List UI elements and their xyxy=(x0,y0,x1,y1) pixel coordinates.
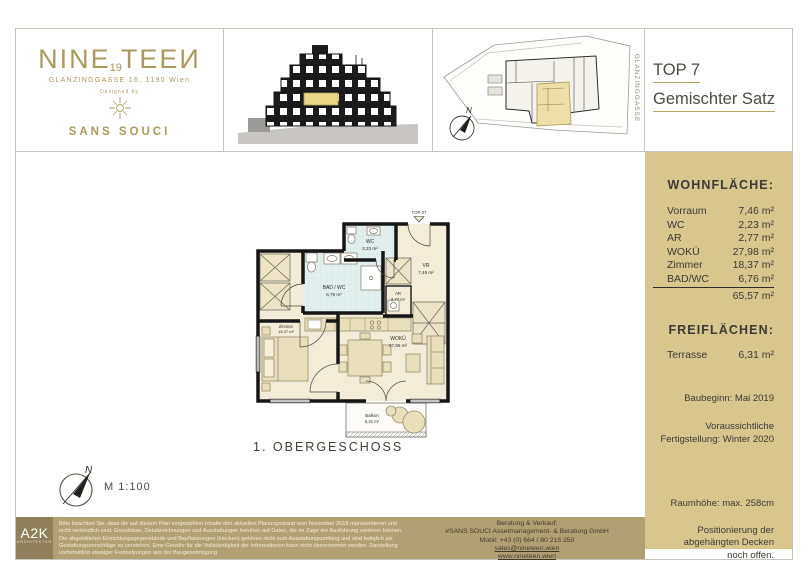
designed-by-label: Designed by xyxy=(16,89,223,95)
contact-block: Beratung & Verkauf: #SANS SOUCI Assetman… xyxy=(409,517,645,559)
plant-icon xyxy=(386,406,396,416)
kitchen-sink xyxy=(308,320,321,329)
brand-name-part2: TEEИ xyxy=(121,44,201,74)
room-label-wokue-area: 27,98 m² xyxy=(389,343,408,348)
area-row-value: 2,77 m² xyxy=(738,232,774,246)
bed xyxy=(262,327,308,391)
area-row-label: Zimmer xyxy=(667,259,703,273)
room-label-vr-area: 7,46 m² xyxy=(418,270,434,275)
total-area-value: 65,57 m² xyxy=(653,287,774,302)
plant-icon xyxy=(403,411,425,433)
completion-note-line2: Fertigstellung: Winter 2020 xyxy=(653,434,774,447)
area-row-value: 27,98 m² xyxy=(733,246,774,260)
outdoor-area-row: Terrasse6,31 m² xyxy=(653,349,774,363)
building-section-drawing xyxy=(238,34,418,146)
completion-note-line1: Voraussichtliche xyxy=(653,421,774,434)
entrance-label: TOP 07 xyxy=(412,210,428,215)
area-row-label: BAD/WC xyxy=(667,273,709,287)
area-row: AR2,77 m² xyxy=(653,232,774,246)
room-label-wokue-name: WOKÜ xyxy=(390,335,406,342)
brand-name: NINE19TEEИ xyxy=(16,44,223,75)
brand-logo-panel: NINE19TEEИ GLANZINGGASSE 16, 1190 Wien D… xyxy=(16,29,224,152)
entrance-marker: TOP 07 xyxy=(412,210,428,222)
architect-logo-text: A2K xyxy=(16,526,53,540)
brand-address: GLANZINGGASSE 16, 1190 Wien xyxy=(16,77,223,84)
area-row-label: WC xyxy=(667,219,685,233)
room-label-wc-area: 2,23 m² xyxy=(362,246,378,251)
brand-name-part1: NINE xyxy=(38,44,111,74)
area-row: WOKÜ27,98 m² xyxy=(653,246,774,260)
highlighted-unit-section xyxy=(304,93,338,105)
scale-label: M 1:100 xyxy=(104,481,151,493)
toilet xyxy=(348,235,355,244)
site-plan-panel: GLANZINGGASSE N xyxy=(433,29,645,152)
area-row: Zimmer18,37 m² xyxy=(653,259,774,273)
architect-logo-subtext: ARCHITEKTEN xyxy=(16,540,53,544)
north-compass-icon: N xyxy=(50,460,106,516)
living-area-heading: WOHNFLÄCHE: xyxy=(653,178,774,192)
designer-name: SANS SOUCI xyxy=(16,126,223,138)
north-label: N xyxy=(85,465,93,476)
room-label-balkon-name: Balkon xyxy=(365,413,379,418)
ceiling-note: Positionierung der abgehängten Decken no… xyxy=(653,525,774,563)
kitchen-counter xyxy=(305,318,411,331)
living-area-table: Vorraum7,46 m² WC2,23 m² AR2,77 m² WOKÜ2… xyxy=(653,205,774,302)
area-row-label: AR xyxy=(667,232,682,246)
site-north-compass-icon: N xyxy=(450,106,474,140)
room-label-vr-name: VR xyxy=(423,263,430,269)
completion-note: Voraussichtliche Fertigstellung: Winter … xyxy=(653,421,774,446)
area-row: BAD/WC6,76 m² xyxy=(653,273,774,287)
toilet xyxy=(306,253,317,262)
floor-plan-drawing: TOP 07 WC 2,23 m² BAD / WC 6,76 m² VR 7,… xyxy=(248,206,458,456)
unit-title: TOP 7 xyxy=(653,61,700,83)
area-row-value: 18,37 m² xyxy=(733,259,774,273)
construction-start-note: Baubeginn: Mai 2019 xyxy=(653,393,774,406)
architect-logo: A2K ARCHITEKTEN xyxy=(16,517,53,559)
area-row: Vorraum7,46 m² xyxy=(653,205,774,219)
unit-title-panel: TOP 7 Gemischter Satz xyxy=(645,29,792,152)
coffee-table xyxy=(406,354,420,372)
area-row-label: WOKÜ xyxy=(667,246,700,260)
disclaimer-text: Bitte beachten Sie, dass die auf diesem … xyxy=(53,517,409,559)
entrance-arrow-icon xyxy=(414,217,424,223)
outdoor-area-heading: FREIFLÄCHEN: xyxy=(653,323,774,337)
side-table xyxy=(412,334,422,343)
unit-subtitle: Gemischter Satz xyxy=(653,90,775,112)
room-label-bad-name: BAD / WC xyxy=(323,285,346,291)
room-label-balkon-area: 6,31 m² xyxy=(365,419,380,424)
contact-web-link[interactable]: www.nineteen.wien xyxy=(498,553,556,560)
room-label-bad-area: 6,76 m² xyxy=(326,292,342,297)
contact-email-link[interactable]: sales@nineteen.wien xyxy=(495,545,560,552)
site-plan-drawing: GLANZINGGASSE N xyxy=(436,31,642,150)
room-label-zimmer-area: 18,37 m² xyxy=(278,329,294,334)
site-north-label: N xyxy=(466,106,472,115)
room-label-ar-name: AR xyxy=(395,291,401,296)
area-row-value: 2,23 m² xyxy=(738,219,774,233)
contact-company: #SANS SOUCI Assetmanagement- & Beratung … xyxy=(409,528,645,536)
area-row-label: Terrasse xyxy=(667,349,707,363)
area-row-value: 6,76 m² xyxy=(738,273,774,287)
area-row: WC2,23 m² xyxy=(653,219,774,233)
floor-label: 1. OBERGESCHOSS xyxy=(253,440,403,454)
contact-heading: Beratung & Verkauf: xyxy=(409,520,645,528)
area-row-value: 6,31 m² xyxy=(738,349,774,363)
street-label: GLANZINGGASSE xyxy=(633,54,640,123)
building-section-panel xyxy=(224,29,433,152)
balcony xyxy=(346,403,426,437)
area-sidebar: WOHNFLÄCHE: Vorraum7,46 m² WC2,23 m² AR2… xyxy=(645,152,792,549)
contact-mobile: Mobil: +43 (0) 664 / 80 215 250 xyxy=(409,537,645,545)
room-height-note: Raumhöhe: max. 258cm xyxy=(653,498,774,511)
area-row-label: Vorraum xyxy=(667,205,707,219)
area-row-value: 7,46 m² xyxy=(738,205,774,219)
room-label-wc-name: WC xyxy=(366,239,375,245)
footer-bar: A2K ARCHITEKTEN Bitte beachten Sie, dass… xyxy=(16,517,645,559)
sun-icon xyxy=(108,96,132,120)
toilet xyxy=(347,227,356,234)
room-label-ar-area: 2,77 m² xyxy=(391,297,406,302)
brand-name-number: 19 xyxy=(110,62,122,74)
